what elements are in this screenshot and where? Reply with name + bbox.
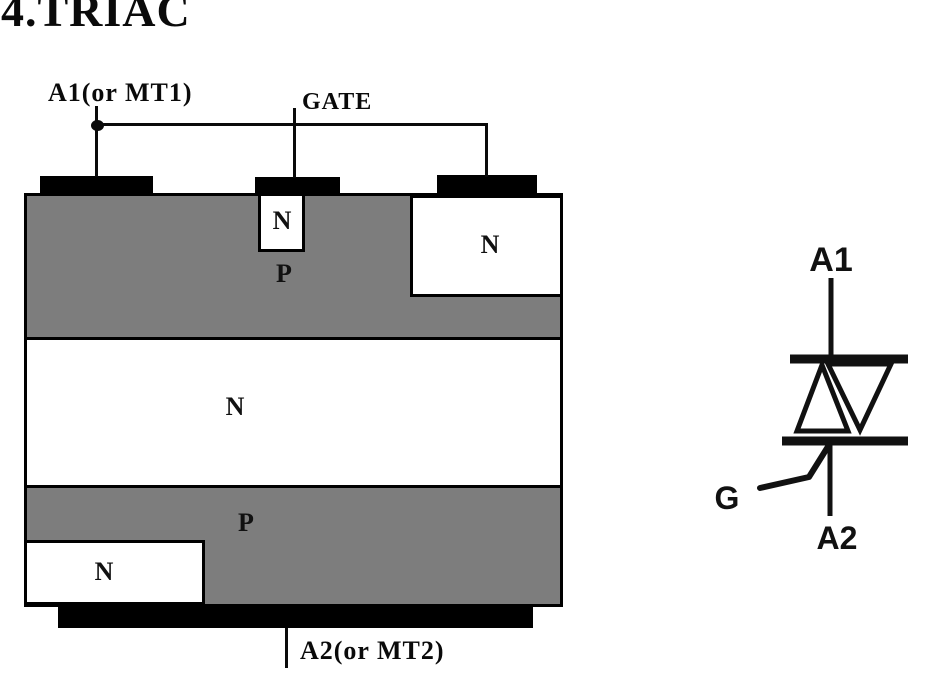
triac-figure: 4.TRIAC A1(or MT1) GATE A2(or MT2) N P [0, 0, 951, 673]
triac-symbol: A1 G A2 [695, 225, 945, 565]
symbol-gate-label: G [715, 480, 740, 516]
gate-lead-wire [293, 108, 296, 178]
symbol-a2-label: A2 [817, 520, 858, 556]
a1-lead-wire [95, 106, 98, 177]
symbol-gate-lead [760, 445, 829, 488]
page-title: 4.TRIAC [1, 0, 191, 34]
gate-n-well-label: N [267, 206, 297, 236]
terminal-label-a1: A1(or MT1) [48, 80, 193, 106]
a1-to-n-horizontal-wire [96, 123, 488, 126]
gate-electrode [255, 177, 340, 195]
a1-electrode [40, 176, 153, 196]
middle-n-layer [27, 343, 560, 485]
middle-n-label: N [220, 392, 250, 422]
a2-lead-wire [285, 628, 288, 668]
terminal-label-a2: A2(or MT2) [300, 638, 445, 664]
symbol-a1-label: A1 [809, 241, 852, 279]
bottom-p-label: P [231, 508, 261, 538]
right-n-label: N [475, 230, 505, 260]
bottom-left-n-label: N [89, 557, 119, 587]
symbol-up-triangle [797, 365, 848, 431]
terminal-label-gate: GATE [302, 89, 372, 115]
right-electrode-wire [485, 123, 488, 177]
right-electrode [437, 175, 537, 194]
a2-electrode [58, 606, 533, 628]
top-p-label: P [269, 259, 299, 289]
symbol-down-triangle [828, 364, 891, 430]
